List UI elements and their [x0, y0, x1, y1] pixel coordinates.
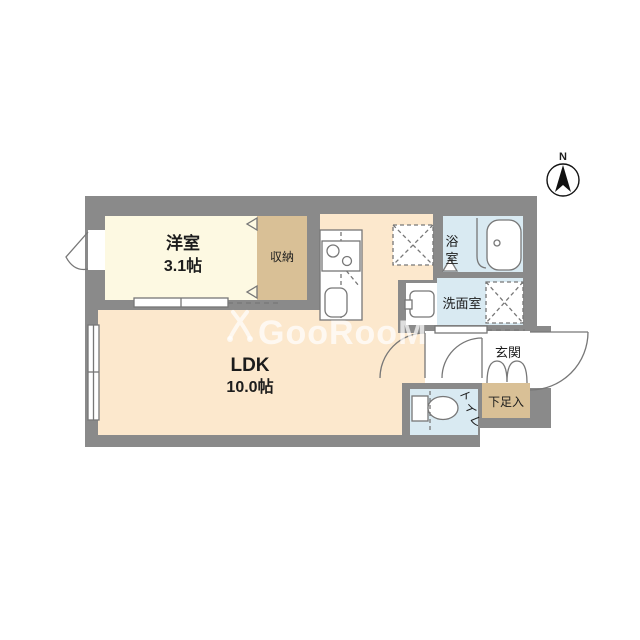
fridge-space-icon — [393, 225, 433, 265]
watermark: GooRooM — [227, 312, 427, 352]
compass-icon: N — [547, 151, 579, 196]
watermark-text: GooRooM — [258, 314, 427, 352]
front-door-gap — [528, 332, 551, 388]
stove-icon — [322, 241, 360, 271]
shoebox-label: 下足入 — [488, 395, 524, 409]
western-outswing-window-icon — [66, 232, 88, 270]
compass-north-label: N — [559, 151, 567, 163]
western-room-label: 洋室 — [166, 233, 200, 253]
entrance-label: 玄関 — [495, 345, 521, 360]
ldk-label: LDK — [230, 355, 269, 376]
closet-label: 収納 — [270, 250, 294, 264]
western-room-size: 3.1帖 — [164, 256, 202, 275]
washer-space-icon — [486, 282, 523, 323]
kitchen-counter-icon — [320, 230, 362, 320]
sink-icon — [325, 288, 347, 317]
floor-plan: N GooRooM 洋室 3.1帖 収納 LDK 10.0帖 浴 室 洗面室 玄… — [0, 0, 640, 640]
bath-label-char1: 浴 — [445, 234, 458, 249]
western-window-gap — [88, 230, 105, 270]
ldk-size: 10.0帖 — [226, 377, 273, 396]
bath-label-char2: 室 — [445, 251, 458, 266]
washroom-label: 洗面室 — [442, 296, 481, 311]
ldk-window-icon — [88, 325, 99, 420]
